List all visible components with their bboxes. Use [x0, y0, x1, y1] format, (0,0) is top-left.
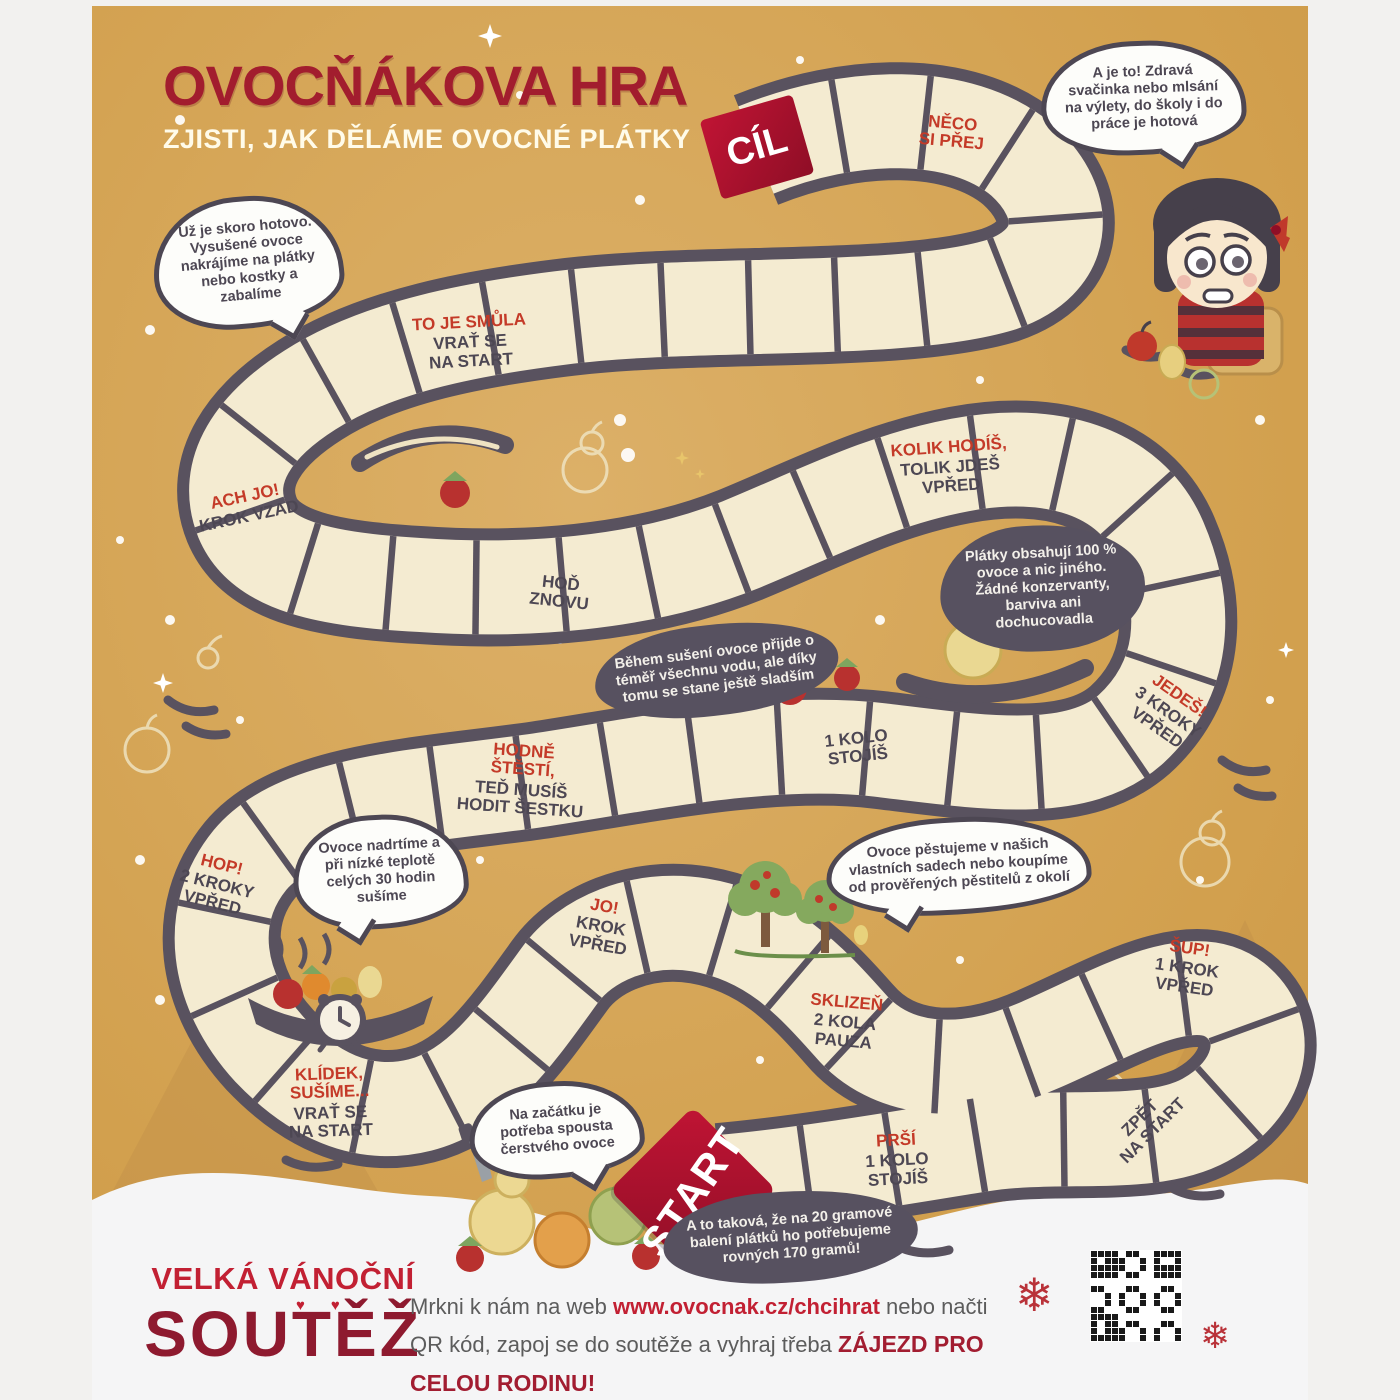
tile-neco: NĚCO SI PŘEJ	[918, 112, 986, 154]
tile-sklizen: SKLIZEŇ2 KOLA PAUZA	[806, 990, 883, 1053]
tile-prsi: PRŠÍ1 KOLO STOJÍŠ	[864, 1130, 930, 1190]
tile-kolo1: 1 KOLO STOJÍŠ	[824, 724, 891, 769]
tile-hodne: HODNĚ ŠTĚSTÍ,TEĎ MUSÍŠ HODIT ŠESTKU	[456, 738, 588, 822]
snowflake-icon: ❄	[1015, 1268, 1054, 1322]
tile-hodznovu: HOĎ ZNOVU	[528, 570, 591, 615]
contest-instructions: Mrkni k nám na web www.ovocnak.cz/chcihr…	[410, 1288, 1010, 1400]
poster-page: CÍL START OVOCŇÁKOVA HRA ZJISTI, JAK DĚL…	[0, 0, 1400, 1400]
tile-kolik: KOLIK HODÍŠ,TOLIK JDEŠ VPŘED	[890, 434, 1010, 499]
game-poster: CÍL START OVOCŇÁKOVA HRA ZJISTI, JAK DĚL…	[0, 0, 1400, 1400]
snowflake-icon: ❄	[1200, 1315, 1230, 1357]
tile-smula: TO JE SMŮLAVRAŤ SE NA START	[412, 311, 529, 374]
game-subtitle: ZJISTI, JAK DĚLÁME OVOCNÉ PLÁTKY	[163, 124, 803, 155]
contest-title-line2: SOUTĚŽ	[144, 1297, 422, 1371]
tile-jo: JO!KROK VPŘED	[567, 893, 635, 959]
contest-title-line1: VELKÁ VÁNOČNÍ	[151, 1261, 414, 1297]
tile-sup: ŠUP!1 KROK VPŘED	[1151, 935, 1223, 1000]
game-title: OVOCŇÁKOVA HRA	[163, 58, 803, 114]
contest-line2: QR kód, zapoj se do soutěže a vyhraj tře…	[410, 1325, 1010, 1400]
qr-code	[1090, 1250, 1182, 1342]
title-block: OVOCŇÁKOVA HRA ZJISTI, JAK DĚLÁME OVOCNÉ…	[163, 58, 803, 155]
tile-klidek: KLÍDEK, SUŠÍME...VRAŤ SE NA START	[287, 1064, 374, 1142]
contest-line1: Mrkni k nám na web www.ovocnak.cz/chcihr…	[410, 1288, 1010, 1325]
website-url: www.ovocnak.cz/chcihrat	[613, 1294, 880, 1319]
